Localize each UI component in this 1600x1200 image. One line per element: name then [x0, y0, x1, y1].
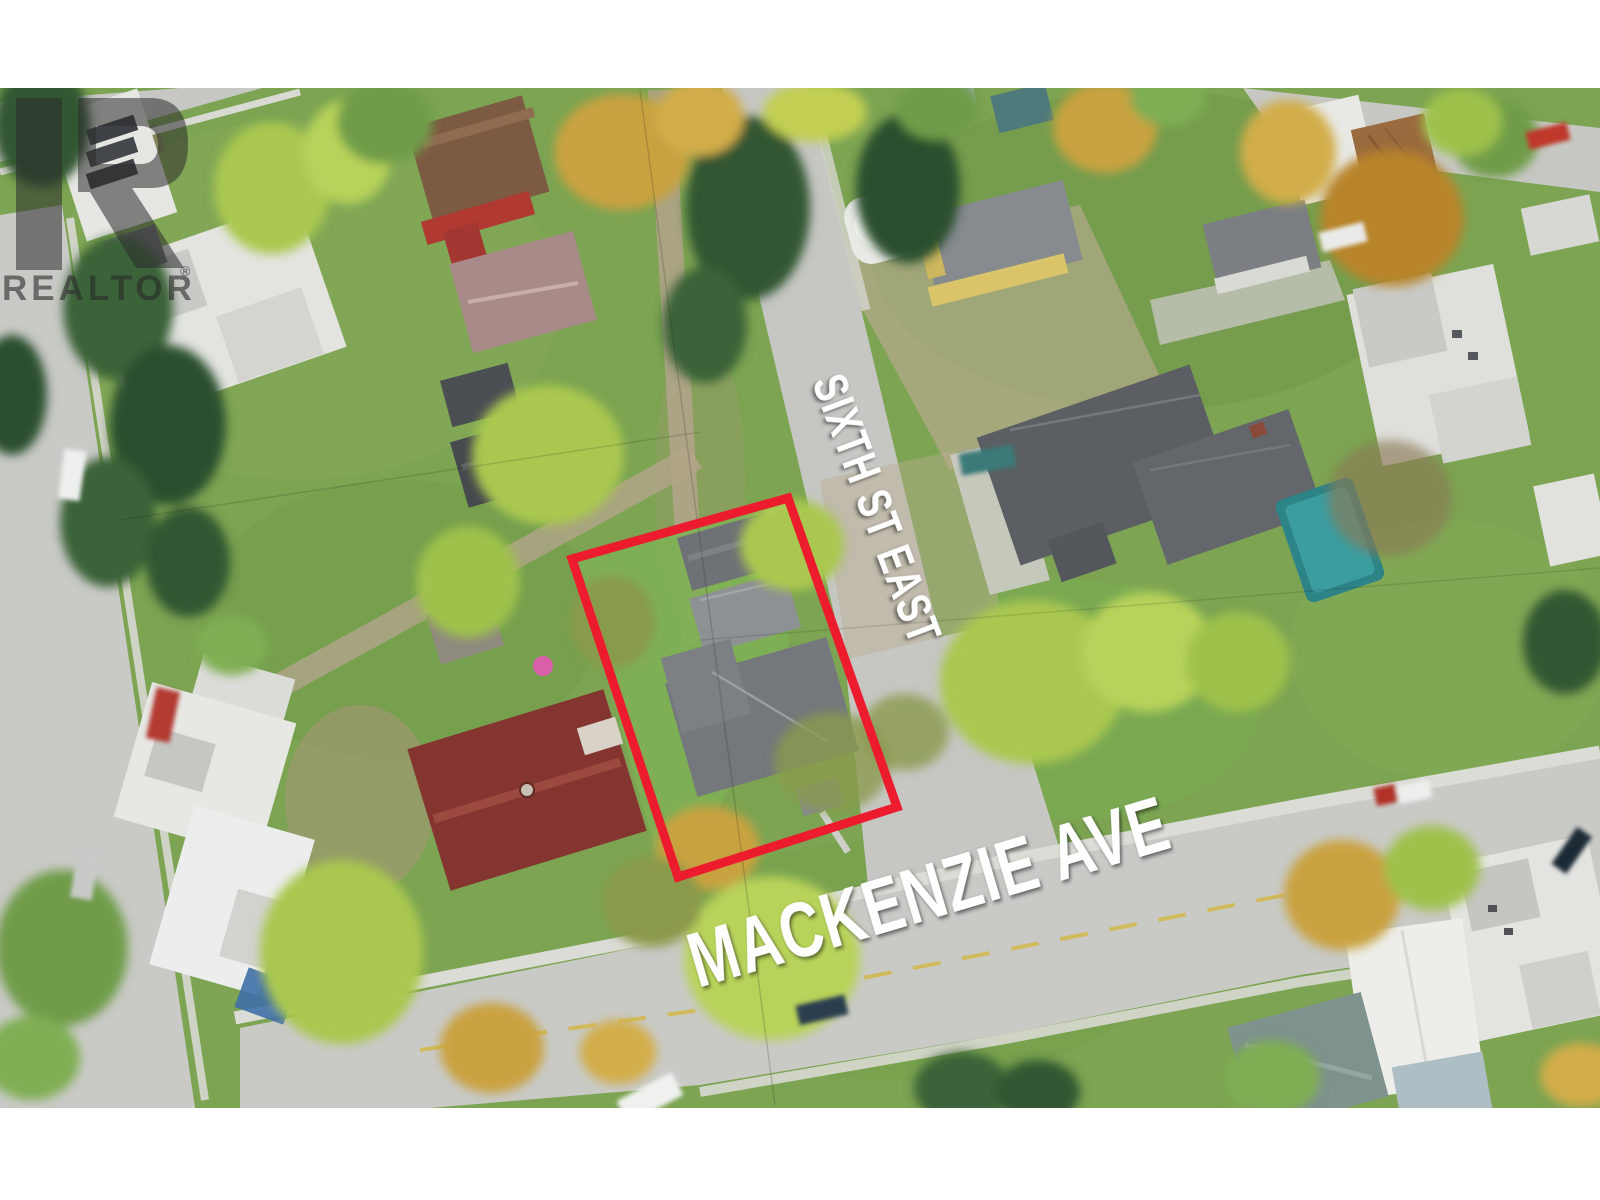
tree	[1130, 70, 1206, 126]
tree	[663, 267, 747, 383]
tree	[656, 80, 744, 156]
tree	[1240, 100, 1336, 204]
tree	[146, 507, 230, 617]
tree	[196, 615, 268, 675]
tree	[1320, 150, 1464, 286]
tree-bare	[1328, 440, 1452, 556]
listing-photo-page: SIXTH ST EAST MACKENZIE AVE REALTOR ®	[0, 0, 1600, 1200]
tree	[1186, 612, 1290, 712]
tree	[1422, 88, 1502, 156]
kiddie-pool	[533, 656, 553, 676]
roof-cupola	[520, 783, 534, 797]
registered-trademark-symbol: ®	[180, 263, 194, 279]
tree	[416, 526, 520, 638]
tree	[440, 1003, 544, 1093]
aerial-photo: SIXTH ST EAST MACKENZIE AVE REALTOR ®	[0, 0, 1600, 1200]
tree	[896, 76, 980, 140]
tree	[996, 1060, 1080, 1124]
tree	[1284, 840, 1400, 950]
tree	[580, 1020, 656, 1084]
tree	[1224, 1040, 1320, 1116]
tree	[763, 82, 867, 142]
tree	[1384, 826, 1480, 910]
tree	[914, 1052, 1010, 1124]
tree	[0, 870, 128, 1026]
tree	[337, 80, 433, 164]
realtor-logo-bar	[16, 98, 62, 270]
realtor-watermark-text: REALTOR	[2, 269, 196, 308]
tree	[260, 860, 424, 1044]
